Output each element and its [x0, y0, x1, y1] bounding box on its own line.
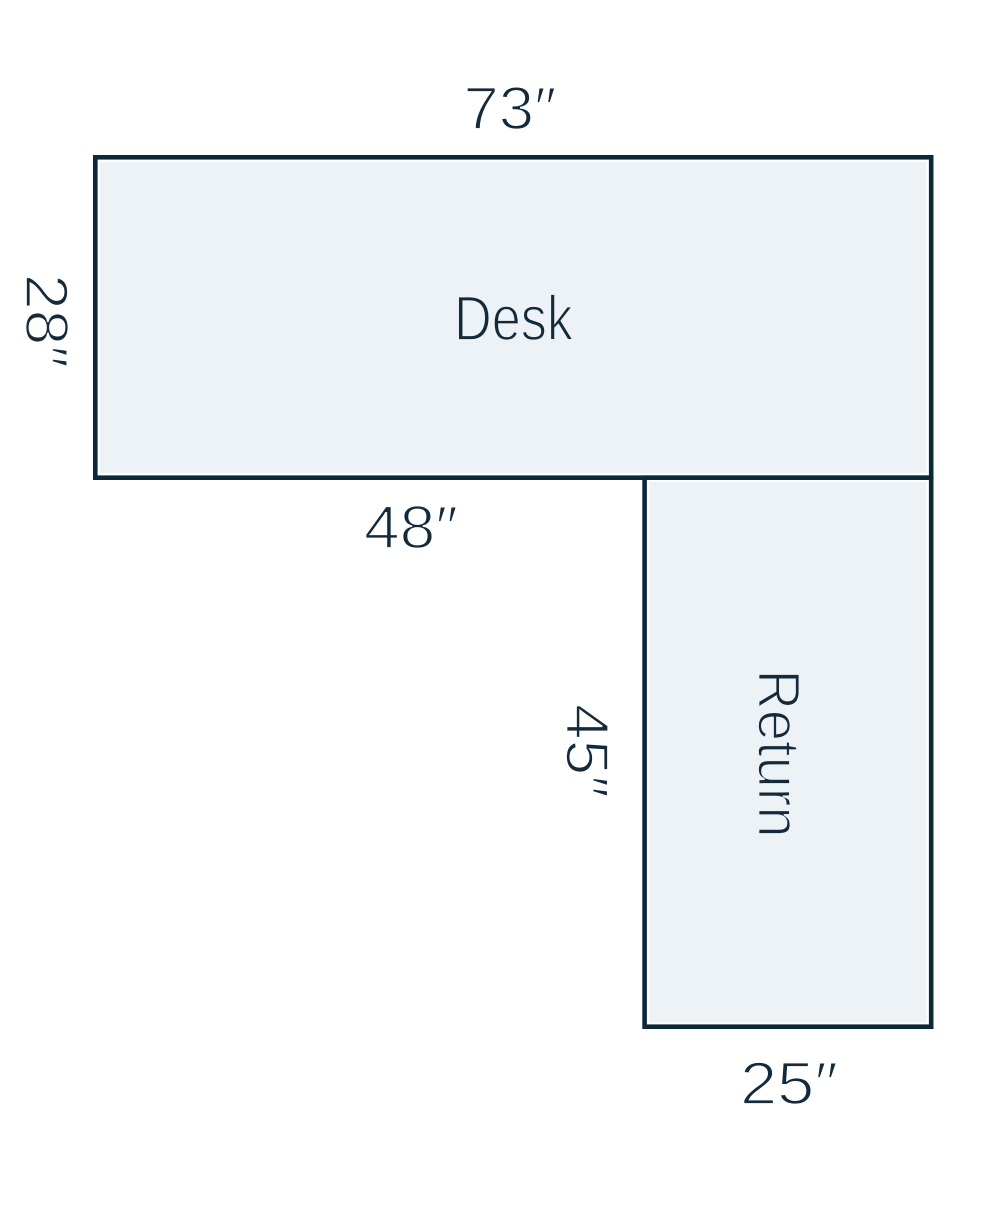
svg-text:28″: 28″	[13, 274, 80, 368]
svg-text:25″: 25″	[740, 1050, 838, 1117]
svg-text:Return: Return	[746, 670, 812, 838]
svg-text:73″: 73″	[464, 75, 557, 142]
svg-text:Desk: Desk	[454, 284, 573, 354]
svg-text:45″: 45″	[554, 704, 621, 798]
svg-text:48″: 48″	[364, 494, 458, 561]
